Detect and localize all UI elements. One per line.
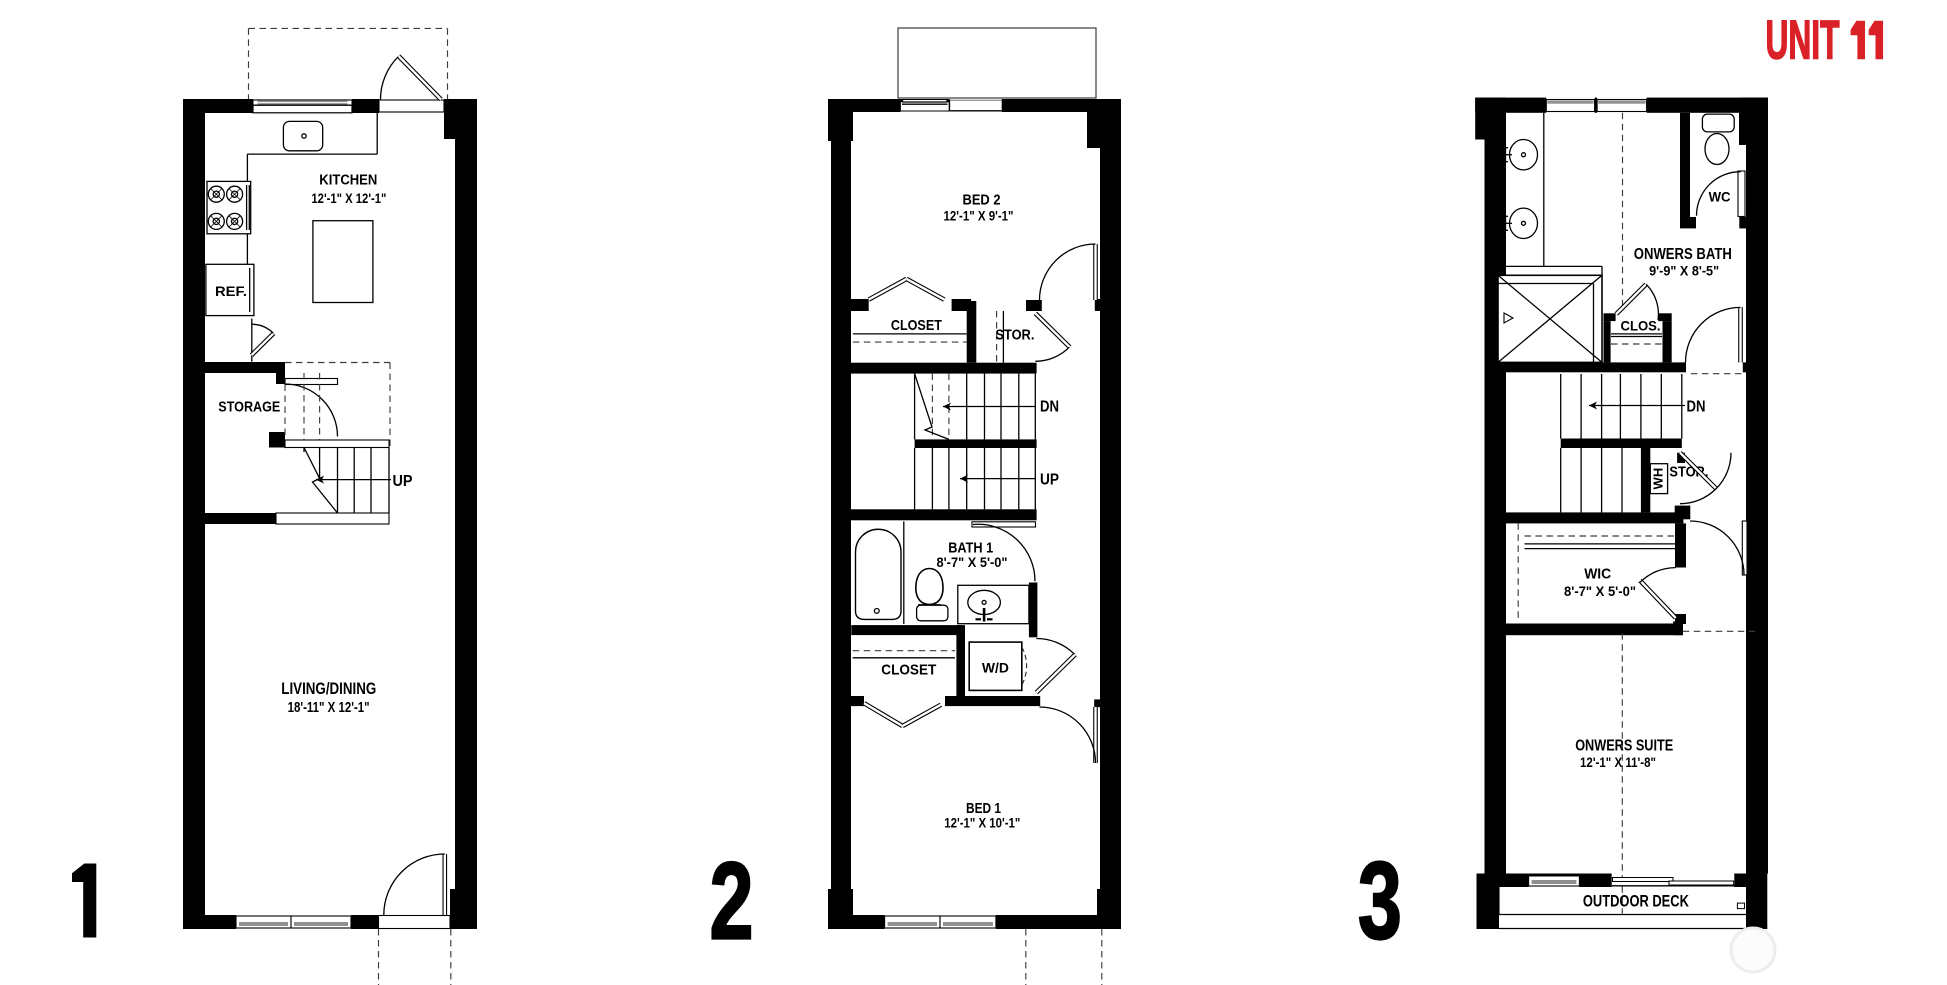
svg-text:18'-11" X 12'-1": 18'-11" X 12'-1" <box>288 699 370 716</box>
svg-text:WH: WH <box>1650 468 1665 490</box>
svg-text:WC: WC <box>1709 189 1731 205</box>
svg-text:DN: DN <box>1687 398 1706 415</box>
svg-text:REF.: REF. <box>215 283 247 299</box>
svg-text:UP: UP <box>1040 472 1059 489</box>
svg-text:OUTDOOR DECK: OUTDOOR DECK <box>1583 893 1689 911</box>
svg-text:12'-1" X 11'-8": 12'-1" X 11'-8" <box>1580 754 1656 770</box>
svg-text:WIC: WIC <box>1584 566 1611 583</box>
svg-text:3: 3 <box>1358 840 1402 963</box>
svg-text:UNIT: UNIT <box>1766 10 1840 71</box>
svg-text:W/D: W/D <box>982 660 1009 676</box>
svg-text:12'-1" X 9'-1": 12'-1" X 9'-1" <box>944 207 1014 223</box>
svg-text:UP: UP <box>393 473 413 490</box>
svg-text:12'-1" X 12'-1": 12'-1" X 12'-1" <box>311 190 386 206</box>
svg-text:2: 2 <box>709 840 753 963</box>
svg-text:CLOSET: CLOSET <box>881 662 936 679</box>
svg-text:12'-1" X 10'-1": 12'-1" X 10'-1" <box>944 815 1020 831</box>
svg-text:BED 2: BED 2 <box>963 192 1001 209</box>
svg-text:KITCHEN: KITCHEN <box>319 173 377 189</box>
svg-text:ONWERS SUITE: ONWERS SUITE <box>1575 738 1673 755</box>
svg-text:8'-7" X 5'-0": 8'-7" X 5'-0" <box>1564 583 1636 599</box>
svg-text:CLOS.: CLOS. <box>1621 318 1661 333</box>
svg-text:STORAGE: STORAGE <box>218 399 280 416</box>
svg-text:8'-7" X 5'-0": 8'-7" X 5'-0" <box>937 554 1008 570</box>
svg-text:9'-9" X 8'-5": 9'-9" X 8'-5" <box>1649 262 1719 278</box>
svg-text:CLOSET: CLOSET <box>891 317 942 334</box>
svg-text:LIVING/DINING: LIVING/DINING <box>281 680 376 698</box>
svg-text:DN: DN <box>1040 399 1059 416</box>
svg-text:STOR.: STOR. <box>995 327 1034 343</box>
svg-text:ONWERS BATH: ONWERS BATH <box>1634 246 1732 263</box>
